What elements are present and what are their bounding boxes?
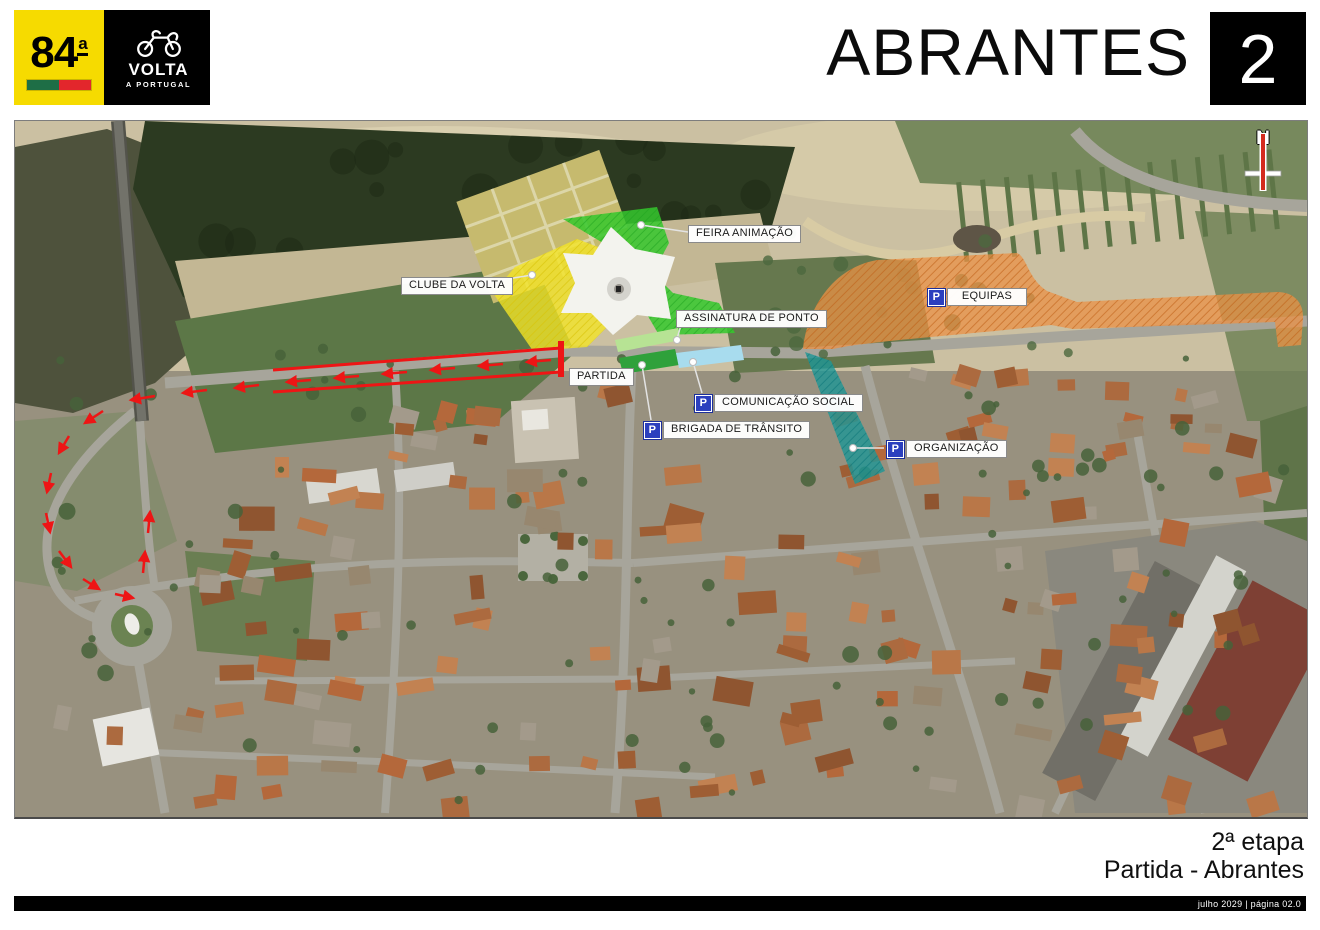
- label-brigada-de-transito: PBRIGADA DE TRÂNSITO: [644, 421, 810, 439]
- footer-bar: julho 2029 | página 02.0: [14, 896, 1306, 911]
- logo-wordmark: VOLTA A PORTUGAL: [107, 10, 210, 105]
- label-comunicacao-social: PCOMUNICAÇÃO SOCIAL: [695, 394, 863, 412]
- label-organizacao: PORGANIZAÇÃO: [887, 440, 1007, 458]
- label-equipas-parking: PEQUIPAS: [928, 288, 1027, 306]
- volta-portugal-logo: 84a VOLTA A PORTUGAL: [14, 10, 210, 105]
- stage-number-badge: 2: [1210, 12, 1306, 105]
- annotation-layer: [15, 121, 1307, 817]
- north-indicator: N: [1243, 131, 1283, 215]
- portugal-flag-stripe: [26, 79, 92, 91]
- label-assinatura-de-ponto: ASSINATURA DE PONTO: [676, 310, 827, 328]
- edition-number: 84a: [30, 24, 87, 73]
- stage-caption: 2ª etapa Partida - Abrantes: [1104, 828, 1304, 884]
- page-info: julho 2029 | página 02.0: [1198, 899, 1306, 909]
- cyclist-icon: [133, 26, 185, 58]
- page-title-city: ABRANTES: [826, 14, 1190, 90]
- edition-panel: 84a: [14, 10, 107, 105]
- zone-comunicacao: [676, 345, 744, 368]
- parking-icon: P: [644, 422, 661, 439]
- parking-icon: P: [887, 441, 904, 458]
- stage-label: 2ª etapa: [1104, 828, 1304, 856]
- north-arrow-icon: [1243, 131, 1283, 195]
- zone-assinatura: [615, 328, 681, 352]
- route-label: Partida - Abrantes: [1104, 856, 1304, 884]
- logo-title: VOLTA: [128, 60, 188, 80]
- parking-icon: P: [695, 395, 712, 412]
- parking-icon: P: [928, 289, 945, 306]
- race-route-lines: [273, 348, 561, 392]
- start-line: [558, 341, 564, 377]
- label-feira-animacao: FEIRA ANIMAÇÃO: [688, 225, 801, 243]
- label-clube-da-volta: CLUBE DA VOLTA: [401, 277, 513, 295]
- satellite-start-map: FEIRA ANIMAÇÃO CLUBE DA VOLTA ASSINATURA…: [14, 120, 1308, 819]
- route-direction-arrows: [46, 360, 551, 598]
- logo-subtitle: A PORTUGAL: [126, 80, 191, 89]
- ordinal-suffix: a: [77, 34, 87, 56]
- label-partida: PARTIDA: [569, 368, 634, 386]
